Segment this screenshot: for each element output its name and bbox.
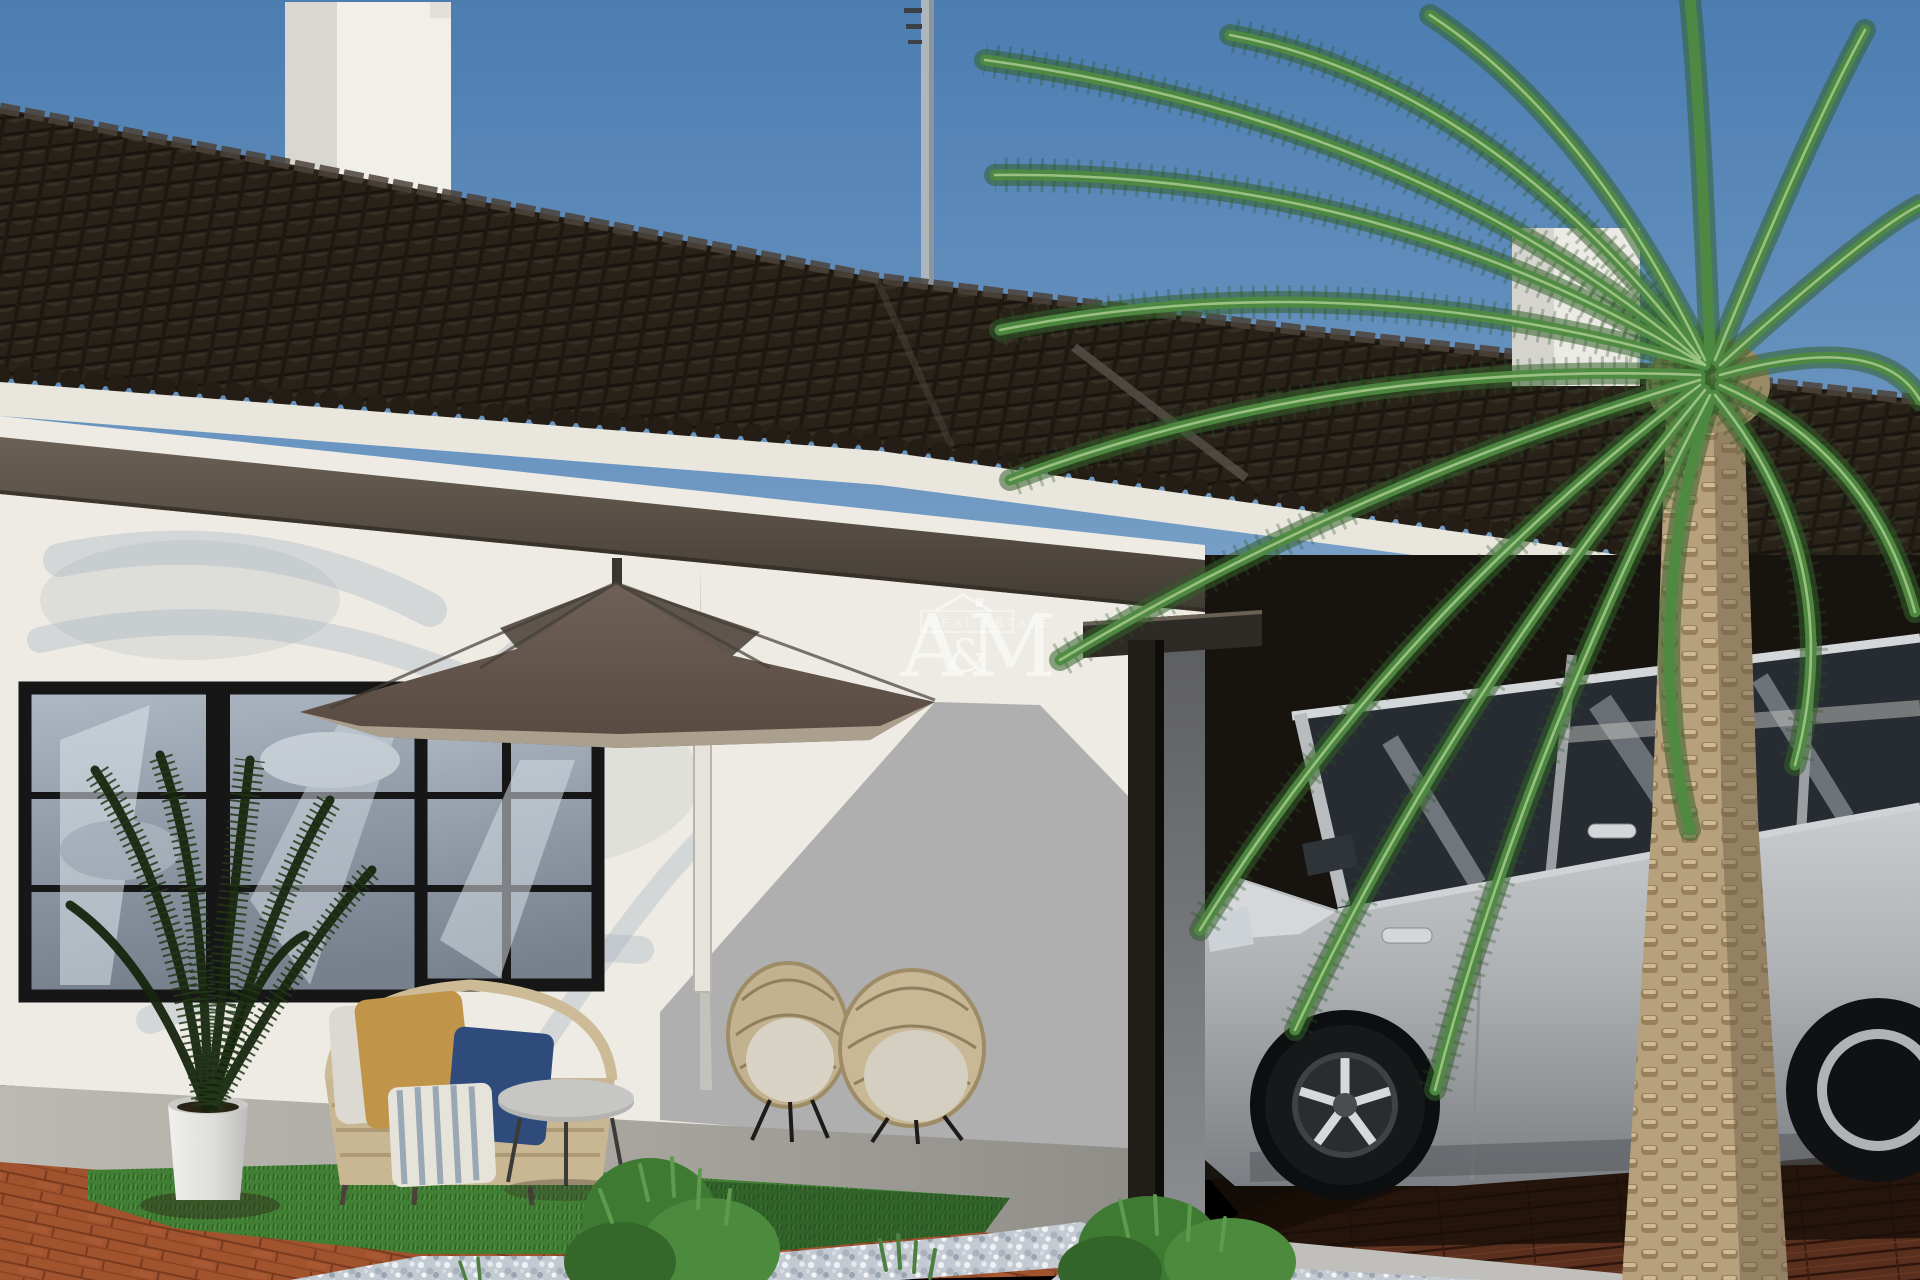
render-canvas: A M & REAL ESTATE [0,0,1920,1280]
watermark-subtitle: REAL ESTATE [929,616,1052,630]
real-estate-render: A M & REAL ESTATE [0,0,1920,1280]
car-door-handle-rear [1588,824,1636,838]
watermark: A M & REAL ESTATE [900,595,1056,697]
umbrella-pole [694,742,711,992]
cushion-striped [387,1082,496,1187]
car-door-handle-front [1382,928,1432,943]
watermark-ampersand: & [948,629,989,683]
white-planter [168,1105,248,1200]
front-wheel [1250,1010,1440,1200]
